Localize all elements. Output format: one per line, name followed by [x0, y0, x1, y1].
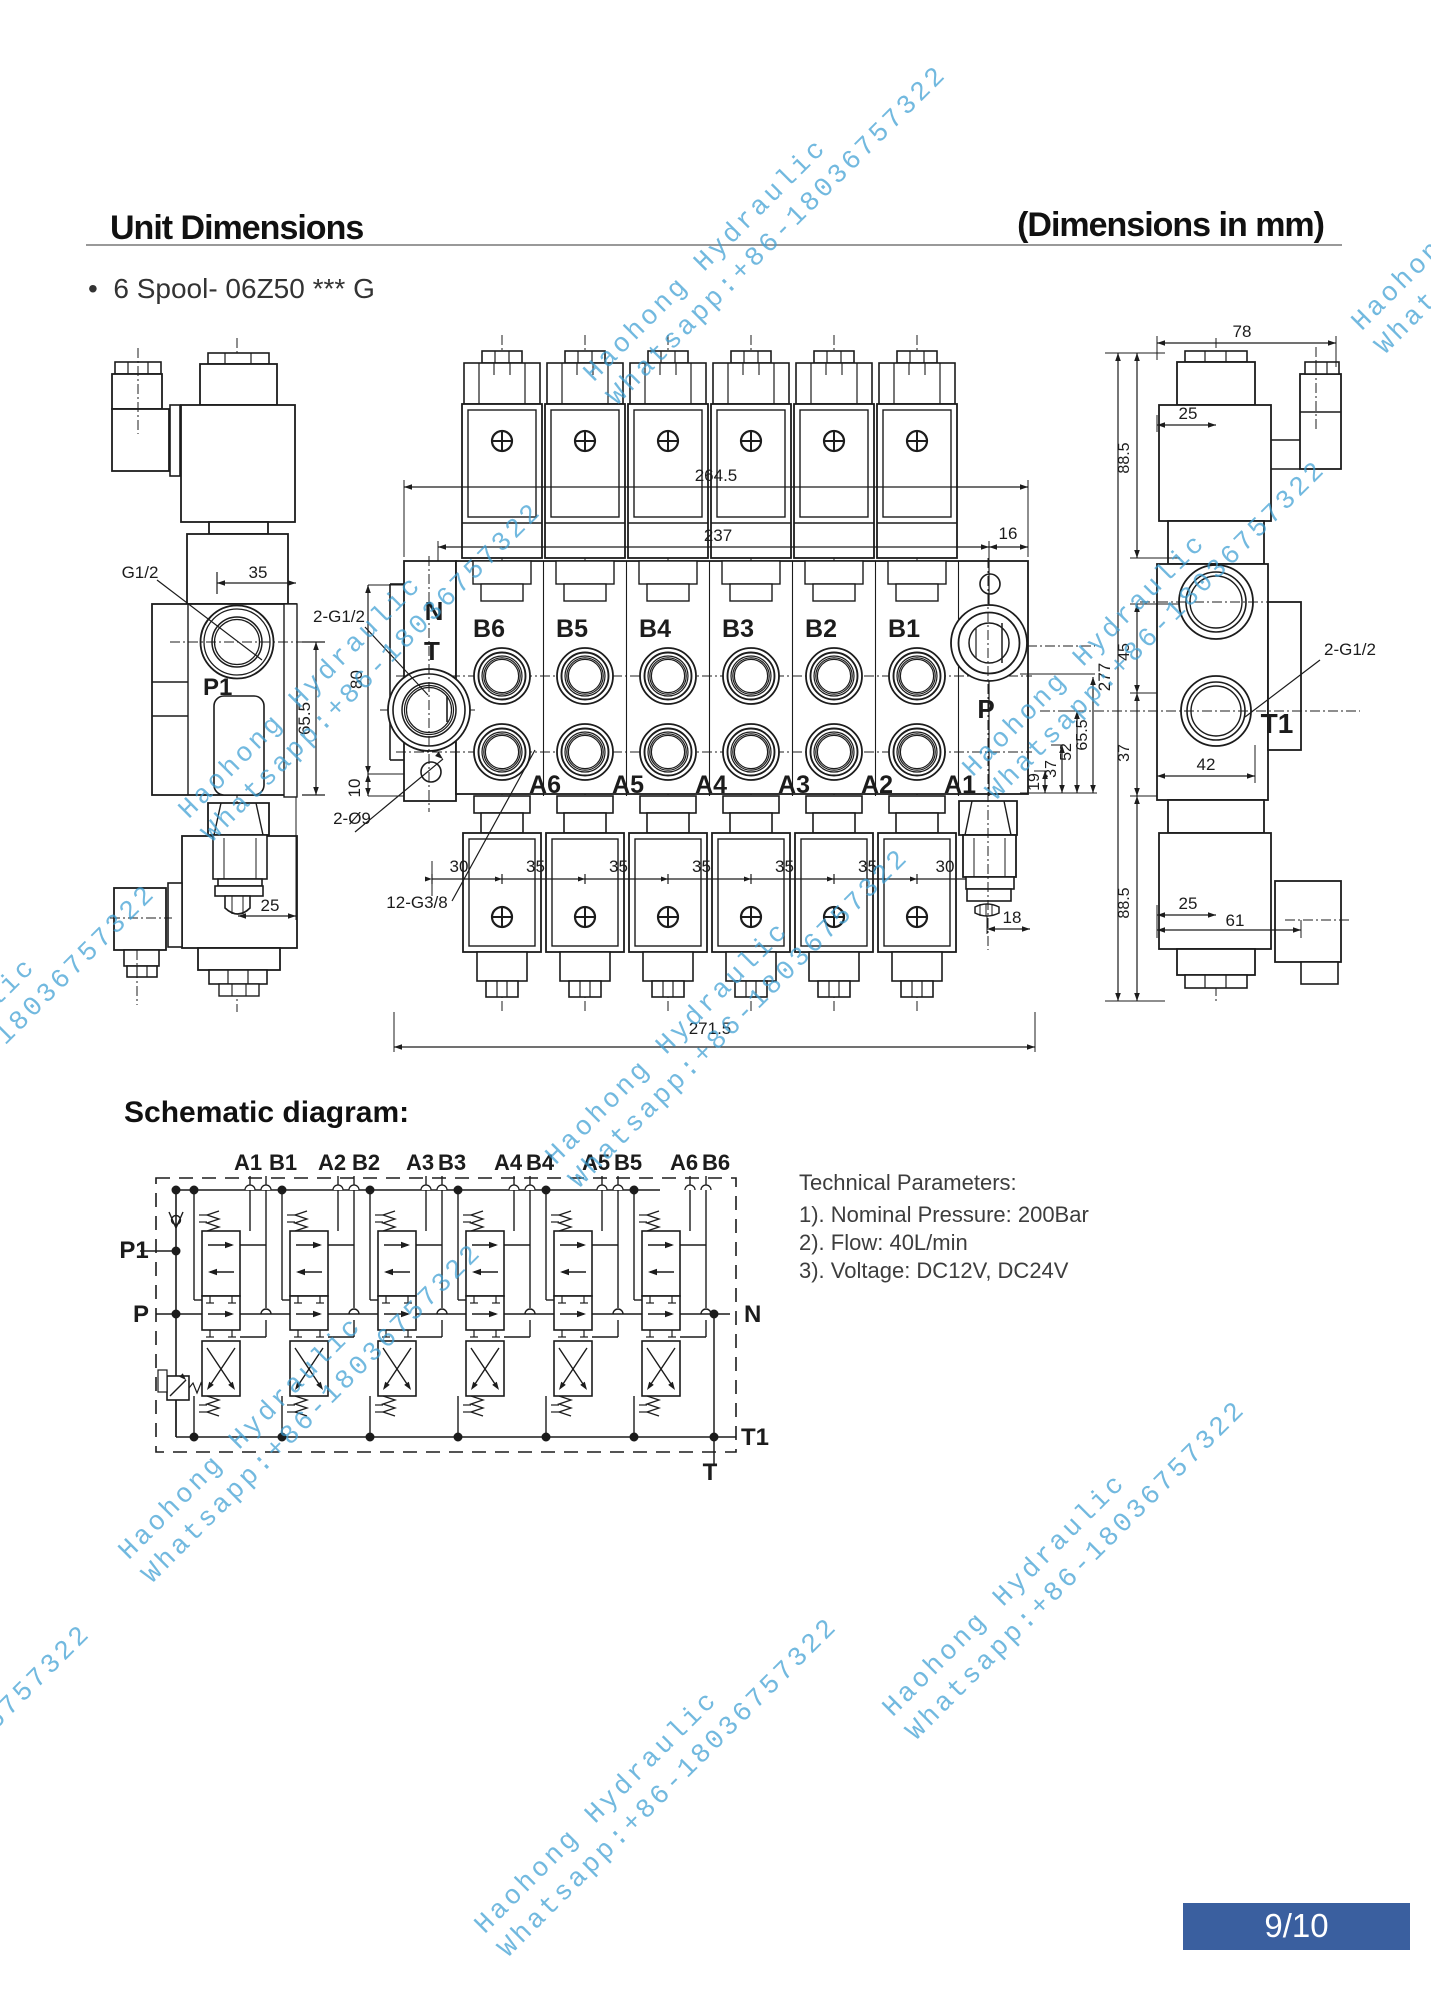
svg-text:B3: B3	[722, 615, 754, 643]
svg-text:88.5: 88.5	[1116, 887, 1133, 918]
svg-text:2-G1/2: 2-G1/2	[1324, 640, 1376, 659]
svg-text:30: 30	[450, 857, 469, 876]
svg-text:A4: A4	[494, 1150, 523, 1175]
svg-text:B1: B1	[269, 1150, 297, 1175]
svg-text:35: 35	[692, 857, 711, 876]
svg-text:37: 37	[1116, 744, 1133, 762]
svg-text:G1/2: G1/2	[122, 563, 159, 582]
svg-text:35: 35	[249, 563, 268, 582]
svg-text:30: 30	[936, 857, 955, 876]
svg-text:B5: B5	[556, 615, 588, 643]
svg-text:35: 35	[609, 857, 628, 876]
svg-text:10: 10	[345, 779, 364, 798]
svg-text:18: 18	[1003, 908, 1022, 927]
svg-text:25: 25	[1179, 404, 1198, 423]
svg-text:A5: A5	[612, 771, 644, 799]
svg-text:237: 237	[704, 526, 732, 545]
svg-text:B2: B2	[805, 615, 837, 643]
svg-text:78: 78	[1233, 322, 1252, 341]
svg-text:A6: A6	[529, 771, 561, 799]
svg-text:P: P	[977, 694, 994, 724]
svg-text:264.5: 264.5	[695, 466, 738, 485]
svg-text:P1: P1	[203, 674, 232, 701]
svg-text:B1: B1	[888, 615, 920, 643]
svg-text:2-Ø9: 2-Ø9	[333, 809, 371, 828]
svg-text:A1: A1	[234, 1150, 262, 1175]
svg-text:A3: A3	[778, 771, 810, 799]
svg-text:B6: B6	[473, 615, 505, 643]
svg-text:T: T	[703, 1459, 718, 1486]
svg-text:A6: A6	[670, 1150, 698, 1175]
svg-text:B2: B2	[352, 1150, 380, 1175]
svg-text:25: 25	[1179, 894, 1198, 913]
svg-text:A4: A4	[695, 771, 727, 799]
svg-text:35: 35	[526, 857, 545, 876]
svg-text:12-G3/8: 12-G3/8	[386, 893, 447, 912]
svg-text:35: 35	[775, 857, 794, 876]
svg-text:B3: B3	[438, 1150, 466, 1175]
svg-text:A3: A3	[406, 1150, 434, 1175]
svg-text:A2: A2	[861, 771, 893, 799]
svg-text:T1: T1	[1261, 708, 1294, 739]
svg-text:42: 42	[1197, 755, 1216, 774]
svg-text:B4: B4	[639, 615, 671, 643]
svg-text:P: P	[133, 1301, 149, 1328]
svg-text:61: 61	[1226, 911, 1245, 930]
svg-text:A2: A2	[318, 1150, 346, 1175]
svg-text:N: N	[744, 1301, 761, 1328]
svg-text:T1: T1	[741, 1424, 769, 1451]
svg-text:25: 25	[261, 896, 280, 915]
svg-text:88.5: 88.5	[1116, 442, 1133, 473]
svg-text:B6: B6	[702, 1150, 730, 1175]
svg-text:16: 16	[999, 524, 1018, 543]
